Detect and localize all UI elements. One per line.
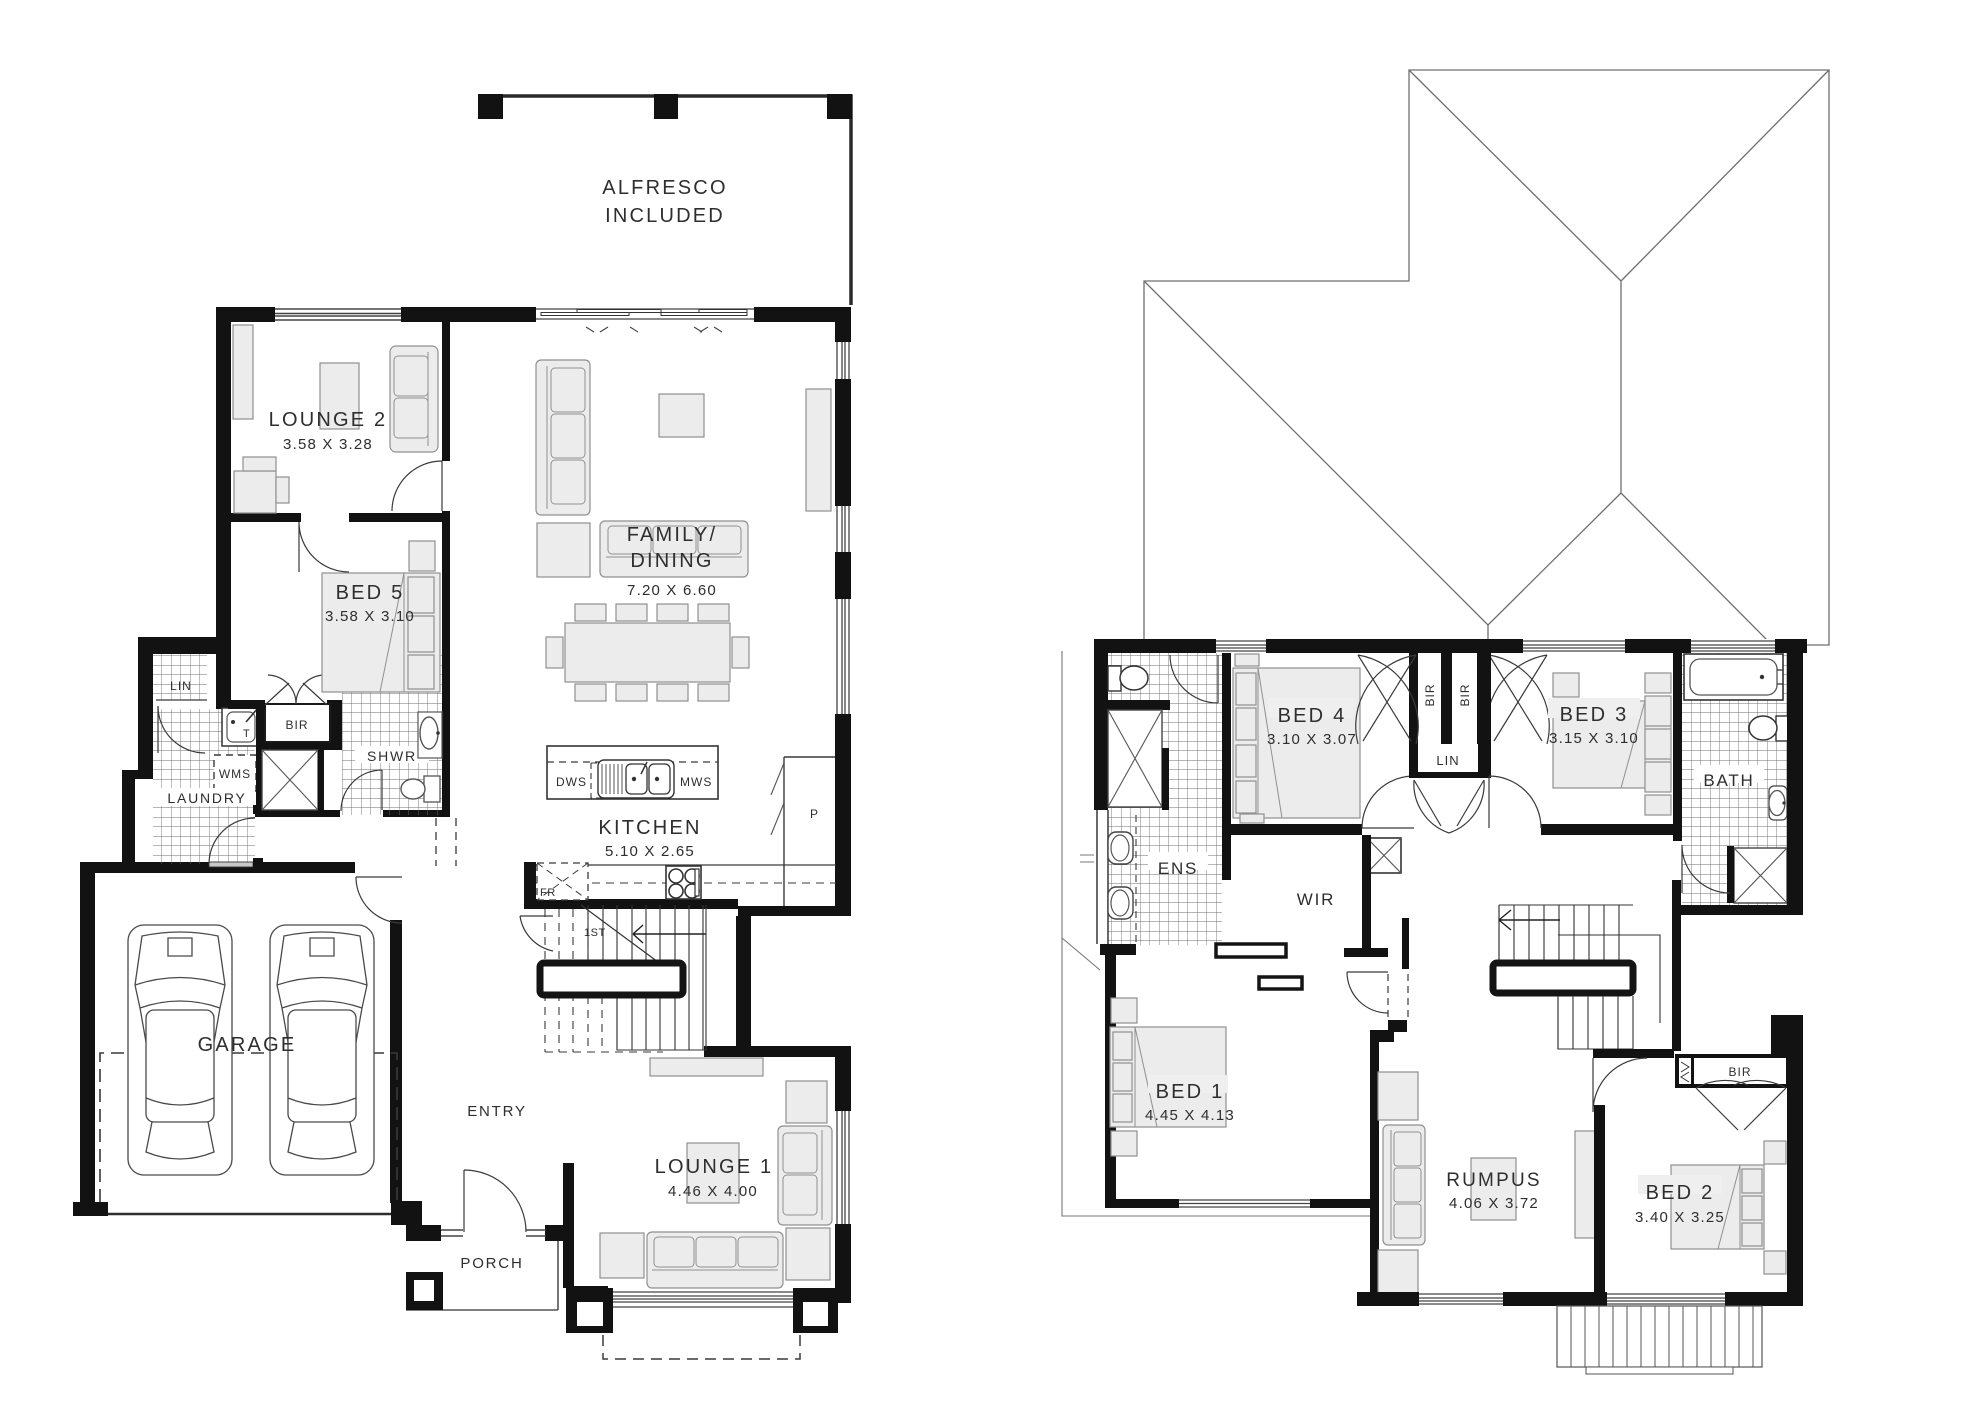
svg-text:LOUNGE 2: LOUNGE 2 [269,409,388,431]
svg-text:BIR: BIR [1423,683,1437,706]
svg-text:BED 4: BED 4 [1278,705,1347,727]
svg-text:ENTRY: ENTRY [467,1103,527,1120]
svg-text:3.15 X 3.10: 3.15 X 3.10 [1549,730,1639,747]
svg-text:3.40 X 3.25: 3.40 X 3.25 [1635,1209,1725,1226]
svg-text:ALFRESCO: ALFRESCO [602,177,727,199]
svg-text:P: P [810,807,819,821]
svg-text:KITCHEN: KITCHEN [598,817,701,839]
svg-text:7.20 X 6.60: 7.20 X 6.60 [627,582,717,599]
svg-text:BED 5: BED 5 [336,582,405,604]
svg-text:3.58 X 3.10: 3.58 X 3.10 [325,608,415,625]
svg-text:3.10 X 3.07: 3.10 X 3.07 [1267,731,1357,748]
svg-text:SHWR: SHWR [367,748,417,764]
svg-text:LOUNGE 1: LOUNGE 1 [655,1156,774,1178]
svg-text:BED 1: BED 1 [1156,1081,1225,1103]
svg-text:DWS: DWS [556,775,587,789]
svg-text:RUMPUS: RUMPUS [1446,1170,1542,1191]
svg-text:WMS: WMS [219,767,251,781]
svg-text:BED 2: BED 2 [1646,1182,1715,1204]
svg-text:GARAGE: GARAGE [198,1034,297,1056]
svg-text:LIN: LIN [1436,753,1459,768]
svg-text:BIR: BIR [1728,1065,1751,1079]
svg-text:BED 3: BED 3 [1560,704,1629,726]
svg-text:T: T [243,728,250,740]
svg-text:LIN: LIN [170,679,192,693]
svg-text:FAMILY/: FAMILY/ [627,524,718,546]
svg-text:BIR: BIR [285,718,308,732]
svg-text:LAUNDRY: LAUNDRY [167,790,246,806]
svg-text:MWS: MWS [680,775,712,789]
svg-text:PORCH: PORCH [460,1255,523,1272]
svg-text:BATH: BATH [1703,771,1754,790]
svg-text:DINING: DINING [630,550,713,572]
svg-text:WIR: WIR [1297,890,1335,909]
svg-text:4.45 X 4.13: 4.45 X 4.13 [1145,1107,1235,1124]
svg-text:3.58 X 3.28: 3.58 X 3.28 [283,436,373,453]
svg-text:INCLUDED: INCLUDED [605,205,725,227]
svg-text:4.46 X 4.00: 4.46 X 4.00 [668,1183,758,1200]
svg-text:1ST: 1ST [584,927,606,939]
svg-text:BIR: BIR [1458,683,1472,706]
svg-text:FR: FR [540,887,556,899]
svg-text:ENS: ENS [1158,859,1198,878]
svg-text:4.06 X 3.72: 4.06 X 3.72 [1449,1195,1539,1212]
svg-text:5.10 X 2.65: 5.10 X 2.65 [605,843,695,860]
